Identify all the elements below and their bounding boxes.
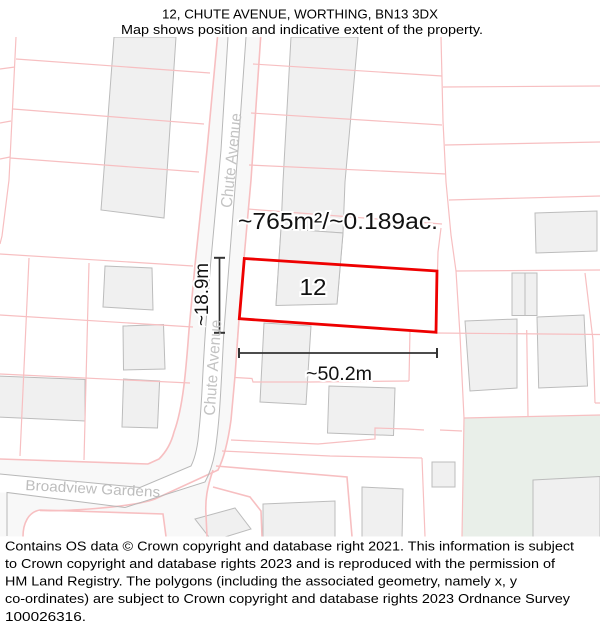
svg-text:~765m²/~0.189ac.: ~765m²/~0.189ac. — [238, 208, 438, 234]
svg-text:~18.9m: ~18.9m — [191, 263, 213, 326]
svg-text:~50.2m: ~50.2m — [306, 363, 372, 385]
svg-text:Map shows position and indicat: Map shows position and indicative extent… — [121, 22, 483, 37]
svg-text:Contains OS data © Crown copyr: Contains OS data © Crown copyright and d… — [5, 538, 574, 553]
svg-text:12, CHUTE AVENUE, WORTHING, BN: 12, CHUTE AVENUE, WORTHING, BN13 3DX — [162, 7, 438, 22]
svg-text:HM Land Registry. The polygons: HM Land Registry. The polygons (includin… — [5, 574, 518, 589]
svg-text:12: 12 — [300, 274, 327, 300]
svg-text:100026316.: 100026316. — [5, 609, 86, 624]
svg-text:co-ordinates) are subject to C: co-ordinates) are subject to Crown copyr… — [5, 591, 571, 606]
svg-text:to Crown copyright and databas: to Crown copyright and database rights 2… — [5, 556, 555, 571]
